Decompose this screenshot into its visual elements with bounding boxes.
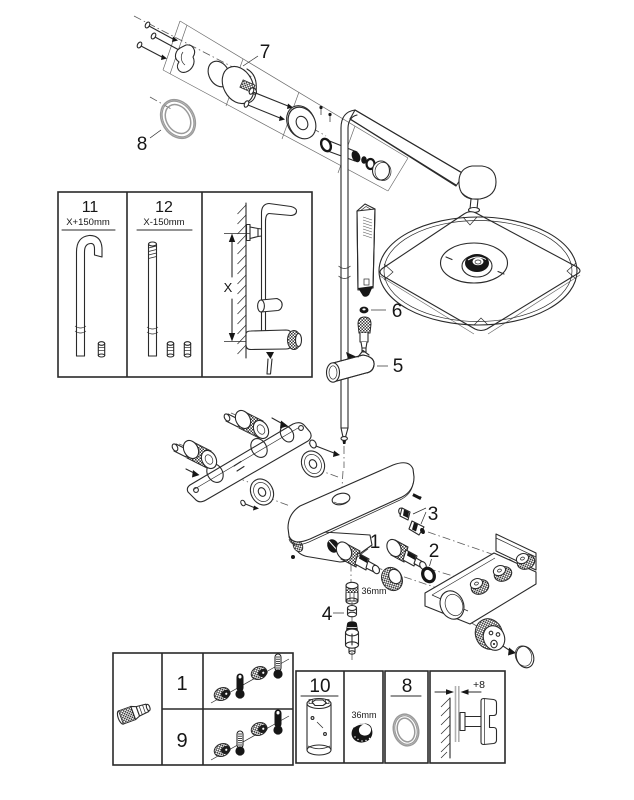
row-9-icons — [211, 710, 289, 760]
shower-arm — [350, 110, 464, 186]
pipe-length-inset: 11 X+150mm 12 X-150mm — [58, 192, 312, 377]
straight-pipe-icon — [147, 242, 191, 357]
wrench-size-label: 36mm — [361, 586, 386, 596]
diagram-canvas: 7 8 — [0, 0, 634, 800]
socket-tube-icon — [307, 699, 331, 756]
option-11-length: X+150mm — [66, 217, 110, 228]
control-trim-plate — [288, 463, 414, 545]
control-housing — [425, 534, 537, 670]
wall-offset-box: +8 — [430, 671, 505, 763]
callout-5: 5 — [393, 356, 404, 377]
option-12-length: X-150mm — [143, 217, 184, 228]
callout-2: 2 — [429, 541, 440, 562]
seal-ring-box: 8 — [385, 671, 428, 763]
dimension-x-label: X — [224, 280, 233, 295]
row-1-icons — [211, 654, 289, 703]
tool-box: 10 36mm — [296, 671, 383, 763]
row-1-number: 1 — [176, 673, 187, 695]
callout-8-leader — [150, 130, 161, 138]
callout-7: 7 — [260, 42, 271, 63]
hose-connector-nut — [358, 317, 371, 352]
spare-wrench-size-label: 36mm — [351, 710, 376, 720]
callout-7-leader — [243, 56, 258, 66]
spare-8-number: 8 — [402, 676, 413, 697]
valve-exploded: 3 1 2 36mm — [171, 408, 439, 654]
callout-4: 4 — [322, 604, 333, 625]
wall-offset-label: +8 — [473, 679, 485, 691]
shower-rail-pipe — [341, 124, 348, 429]
cartridge-variants-box: 1 9 — [113, 653, 293, 765]
mount-bracket — [175, 45, 194, 72]
option-11-number: 11 — [82, 199, 99, 216]
exploded-parts-diagram: 7 8 — [0, 0, 634, 800]
shower-rail-assembly: 6 5 — [283, 102, 580, 444]
adapter-fitting-icon — [116, 700, 152, 725]
wall-reference-drawing: X — [224, 203, 302, 374]
diverter-parts-3: 3 — [397, 493, 438, 535]
check-valve-4: 4 — [322, 582, 359, 654]
rail-wall-holder — [283, 102, 391, 180]
union-nut-2 — [223, 408, 272, 441]
rail-bottom-tip — [341, 428, 348, 444]
overhead-shower — [379, 212, 580, 334]
option-12-number: 12 — [155, 199, 173, 216]
spares-inset: 1 9 10 — [113, 653, 505, 765]
seal-ring-8: 8 — [137, 93, 203, 155]
tool-10-number: 10 — [309, 676, 330, 697]
callout-6: 6 — [392, 301, 403, 322]
long-screws — [243, 87, 293, 121]
row-9-number: 9 — [176, 730, 187, 752]
hand-shower — [357, 204, 375, 297]
wall-union-icon — [460, 699, 497, 745]
callout-8: 8 — [137, 134, 148, 155]
exploded-knob — [471, 615, 537, 670]
bent-pipe-icon — [75, 235, 105, 357]
callout-1: 1 — [370, 532, 381, 553]
callout-3: 3 — [428, 504, 439, 525]
knurled-ring-icon — [349, 721, 374, 745]
union-nut-1 — [171, 438, 220, 471]
glide-holder-5: 5 — [327, 351, 404, 383]
mounting-plane-band — [163, 21, 408, 191]
